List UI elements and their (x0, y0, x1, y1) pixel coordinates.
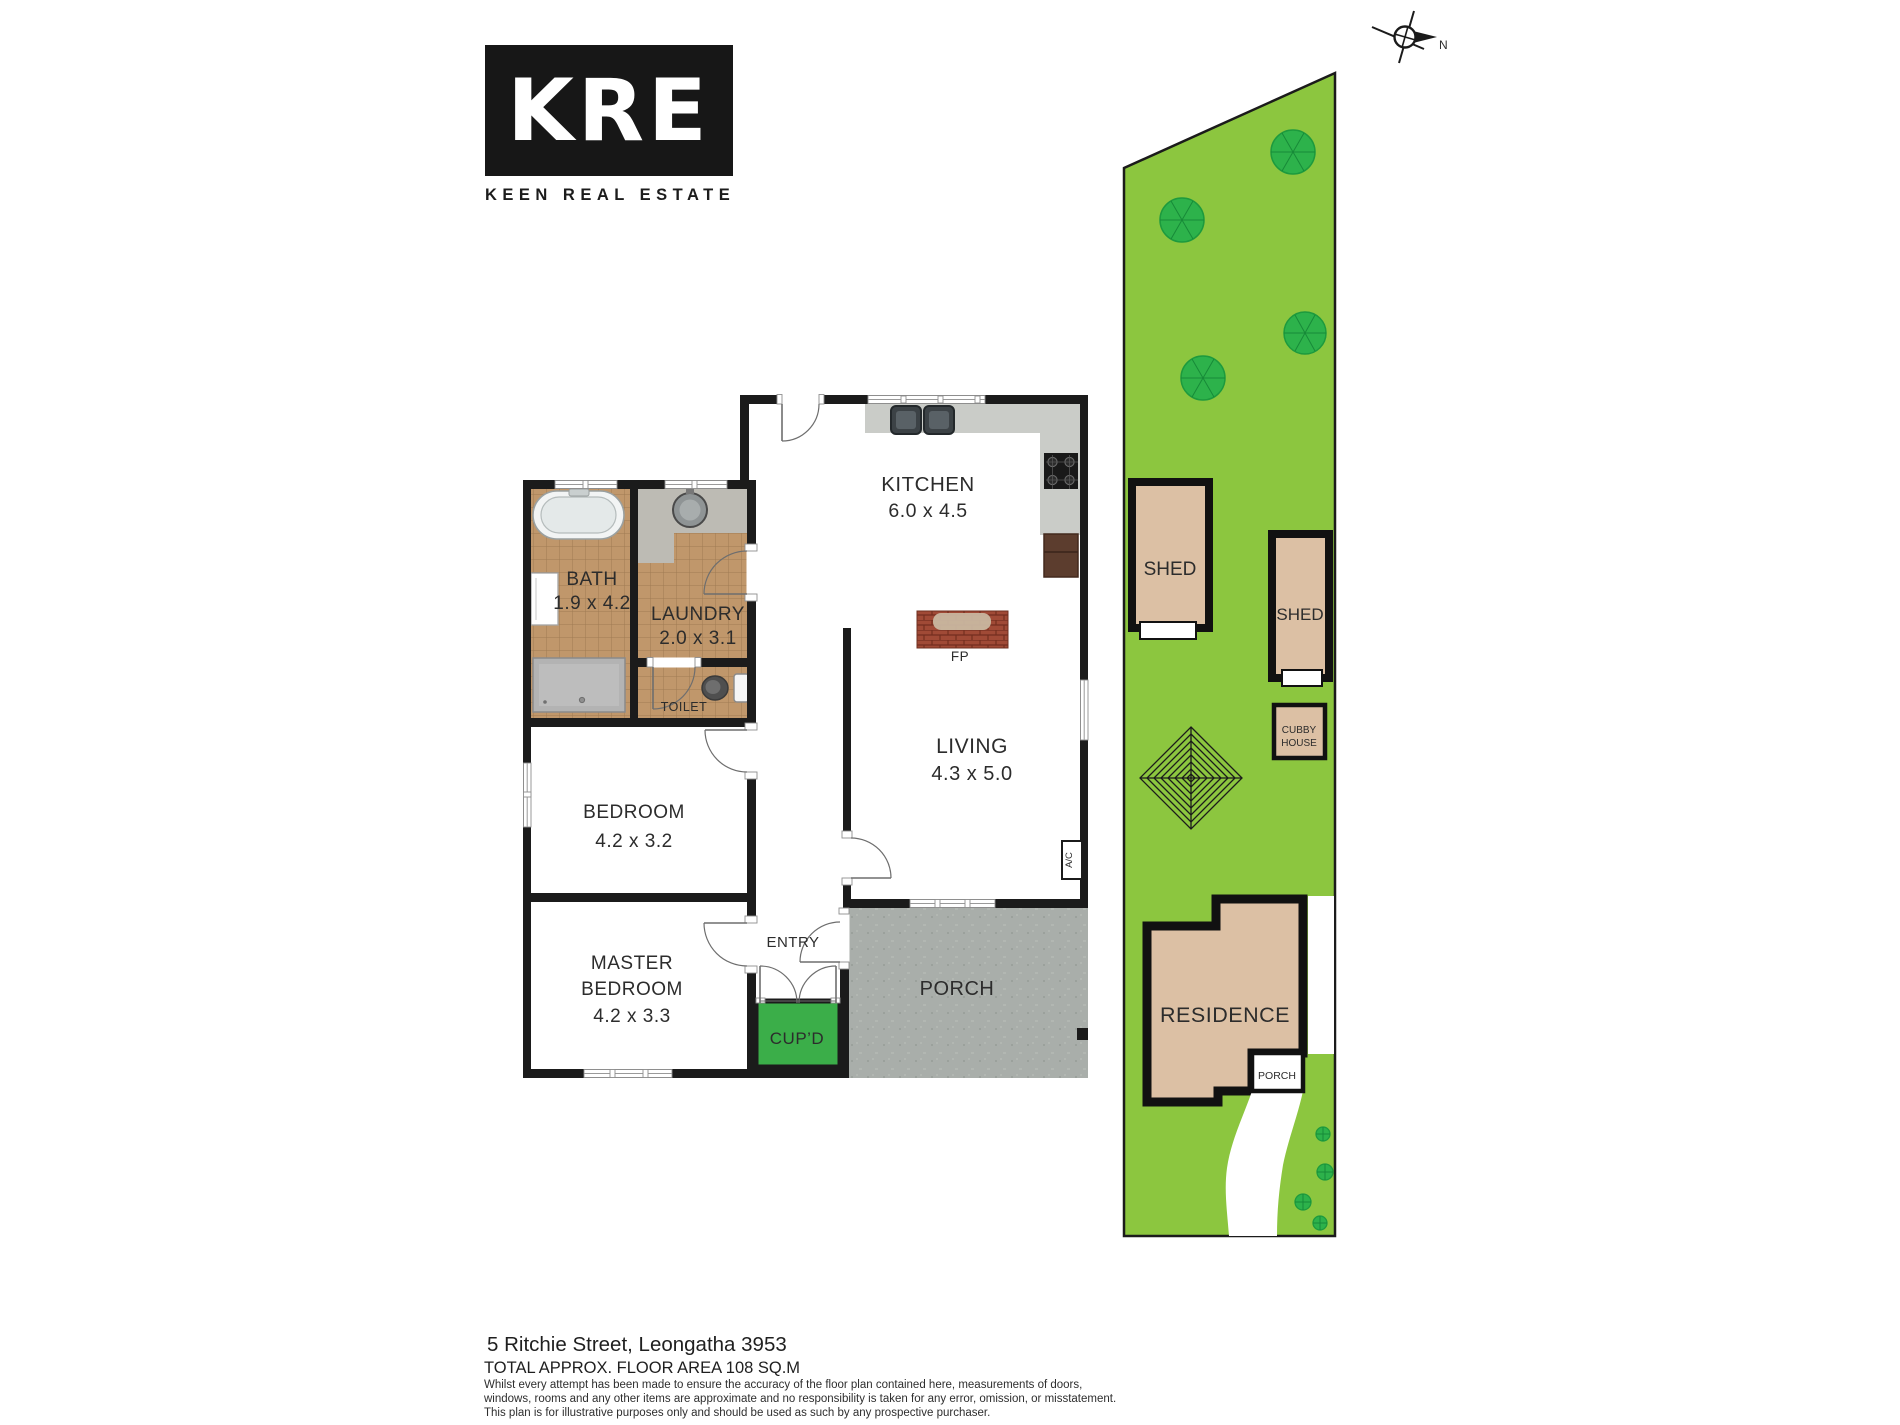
kitchen-label: KITCHEN (881, 473, 974, 496)
residence-label: RESIDENCE (1160, 1003, 1290, 1027)
bush-icon (1295, 1194, 1311, 1210)
disclaimer-line-2: windows, rooms and any other items are a… (484, 1392, 1116, 1406)
cubby-label-1: CUBBY (1282, 725, 1317, 736)
tree-icon (1284, 312, 1326, 354)
living-label: LIVING (936, 735, 1008, 758)
kitchen-sink-bowl (896, 411, 916, 429)
shower-icon (533, 658, 625, 712)
compass-north-label: N (1439, 38, 1448, 52)
floorplan-page: KRE KEEN REAL ESTATE N (0, 0, 1900, 1425)
shed-large: SHED (1132, 482, 1209, 639)
fireplace-icon (917, 611, 1008, 648)
laundry-tap-icon (686, 489, 694, 494)
bush-icon (1313, 1216, 1327, 1230)
bath-label: BATH (566, 569, 617, 590)
disclaimer-line-3: This plan is for illustrative purposes o… (484, 1406, 1116, 1420)
compass-rose-icon (1372, 11, 1437, 63)
laundry-counter-return (638, 489, 674, 563)
footer: 5 Ritchie Street, Leongatha 3953 TOTAL A… (484, 1333, 1116, 1421)
cupboard-label: CUP’D (770, 1029, 824, 1048)
shed-small: SHED (1272, 534, 1329, 686)
tree-icon (1181, 356, 1225, 400)
stove-icon (1044, 453, 1078, 489)
cubby-house: CUBBY HOUSE (1274, 705, 1325, 758)
shed-small-label: SHED (1276, 605, 1323, 624)
bedroom-label: BEDROOM (583, 802, 685, 823)
laundry-label: LAUNDRY (651, 604, 745, 625)
kitchen-dims: 6.0 x 4.5 (888, 500, 967, 522)
brand-logo: KRE (485, 45, 733, 176)
master-label-1: MASTER (591, 953, 673, 974)
disclaimer-line-1: Whilst every attempt has been made to en… (484, 1378, 1116, 1392)
shed-door (1282, 670, 1322, 686)
shed-large-label: SHED (1144, 559, 1197, 580)
property-address: 5 Ritchie Street, Leongatha 3953 (484, 1333, 1116, 1357)
tree-icon (1160, 198, 1204, 242)
residence-porch-label: PORCH (1258, 1070, 1296, 1082)
bathtub-inner (541, 497, 616, 533)
porch-post (1077, 1028, 1088, 1040)
tree-icon (1271, 130, 1315, 174)
floorplan: A/C KITCHEN 6.0 x 4.5 BATH 1.9 x 4.2 LAU… (500, 378, 1110, 1090)
bath-dims: 1.9 x 4.2 (553, 593, 630, 614)
ac-label: A/C (1064, 852, 1075, 868)
fireplace-label: FP (951, 649, 969, 664)
bush-icon (1317, 1164, 1333, 1180)
compass: N (1358, 8, 1453, 70)
side-path (1308, 896, 1334, 1054)
brand-name: KEEN REAL ESTATE (485, 186, 733, 205)
laundry-dims: 2.0 x 3.1 (659, 628, 736, 649)
bath-tap-icon (569, 489, 589, 496)
toilet-label: TOILET (661, 700, 708, 714)
floor-area: TOTAL APPROX. FLOOR AREA 108 SQ.M (484, 1358, 1116, 1378)
bush-icon (1316, 1127, 1330, 1141)
porch-label: PORCH (920, 978, 995, 1000)
ac-unit: A/C (1062, 841, 1082, 879)
kitchen-cabinet-icon (1044, 534, 1078, 577)
residence-porch: PORCH (1252, 1053, 1303, 1091)
master-label-2: BEDROOM (581, 979, 683, 1000)
site-plan: SHED SHED CUBBY HOUSE (1115, 55, 1350, 1245)
cubby-label-2: HOUSE (1281, 738, 1317, 749)
laundry-trough-bowl (680, 500, 701, 521)
living-dims: 4.3 x 5.0 (931, 763, 1012, 785)
kitchen-sink-bowl (929, 411, 949, 429)
master-dims: 4.2 x 3.3 (593, 1006, 670, 1027)
entry-label: ENTRY (766, 934, 819, 951)
brand-logo-mark: KRE (507, 68, 711, 154)
bedroom-dims: 4.2 x 3.2 (595, 831, 672, 852)
shed-door (1140, 622, 1196, 639)
